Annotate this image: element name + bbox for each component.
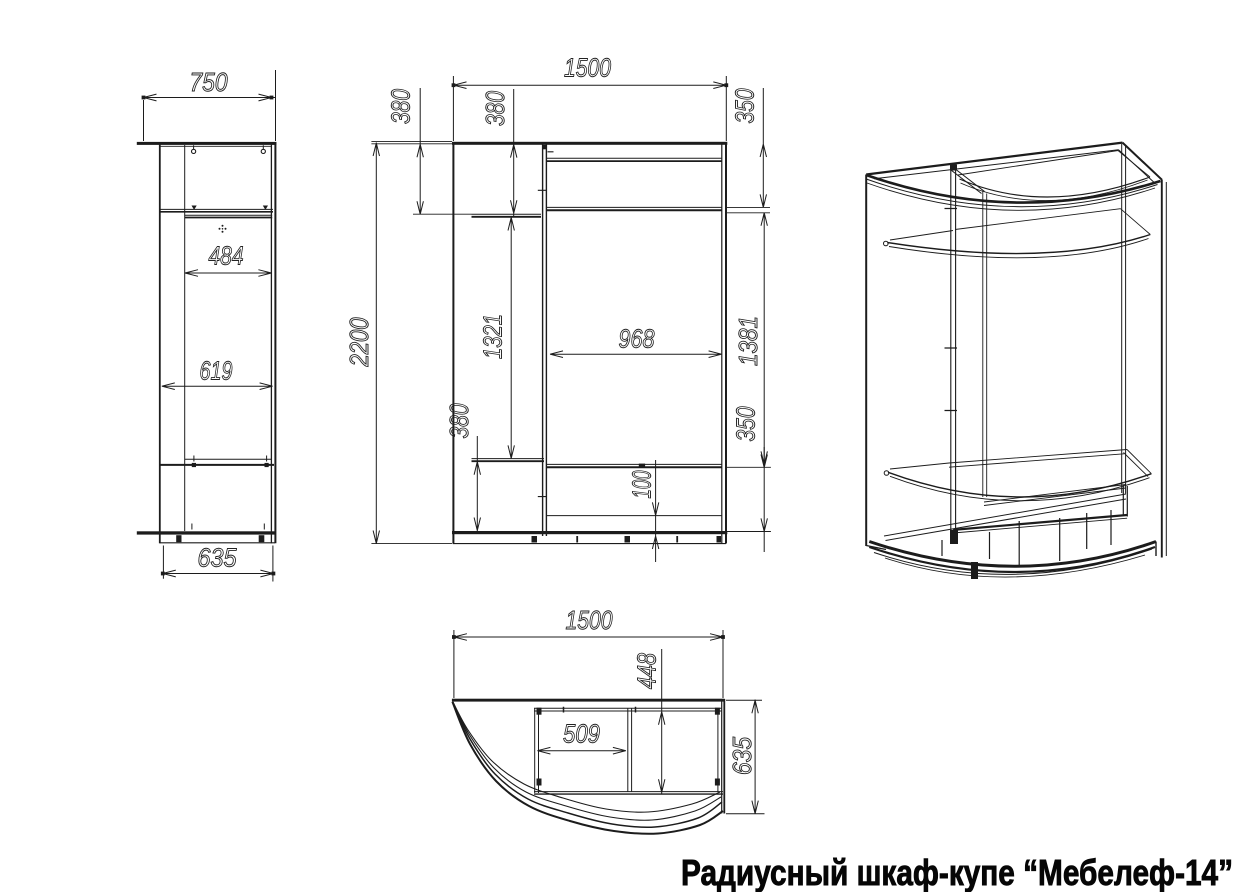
svg-text:Радиусный шкаф-купе “Мебелеф-1: Радиусный шкаф-купе “Мебелеф-14” <box>681 852 1233 892</box>
svg-text:2200: 2200 <box>344 317 374 367</box>
svg-text:380: 380 <box>444 403 474 438</box>
svg-text:635: 635 <box>198 543 237 573</box>
svg-text:1500: 1500 <box>564 53 611 83</box>
svg-text:968: 968 <box>619 324 655 354</box>
svg-text:350: 350 <box>731 406 761 441</box>
svg-text:750: 750 <box>190 67 228 97</box>
svg-text:350: 350 <box>730 88 760 123</box>
svg-text:380: 380 <box>480 91 510 126</box>
svg-text:100: 100 <box>627 470 657 498</box>
svg-text:484: 484 <box>209 241 244 271</box>
svg-text:1381: 1381 <box>733 316 763 366</box>
svg-text:635: 635 <box>727 737 757 775</box>
svg-text:380: 380 <box>386 89 416 124</box>
svg-text:448: 448 <box>632 653 662 689</box>
svg-text:1500: 1500 <box>566 605 613 635</box>
svg-text:1321: 1321 <box>478 314 508 359</box>
svg-text:509: 509 <box>563 719 600 749</box>
svg-text:619: 619 <box>200 356 233 386</box>
